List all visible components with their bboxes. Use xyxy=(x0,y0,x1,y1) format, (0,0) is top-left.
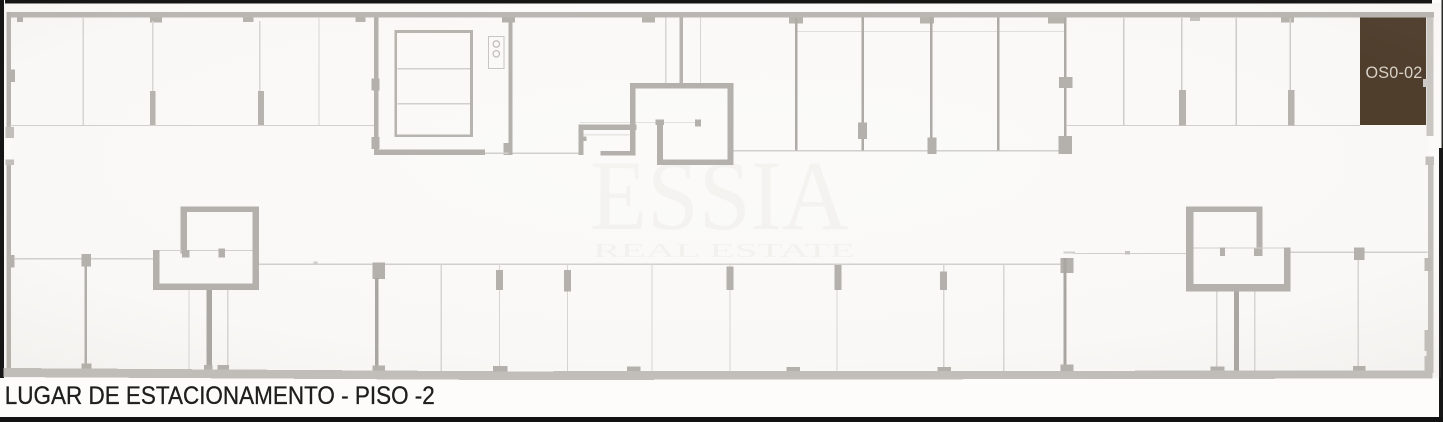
svg-text:LUGAR DE ESTACIONAMENTO - PISO: LUGAR DE ESTACIONAMENTO - PISO -2 xyxy=(5,383,435,410)
